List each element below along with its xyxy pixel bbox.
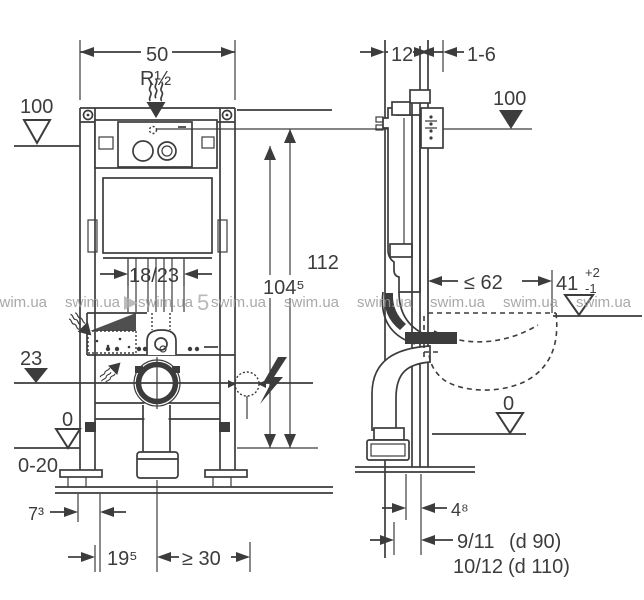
electrical-option — [228, 357, 287, 419]
dim-outlet-center: 19⁵ — [107, 548, 138, 570]
dim-foot-offset: 7³ — [28, 504, 44, 524]
dim-frame-width: 50 — [146, 44, 168, 66]
waste-elbow — [372, 346, 430, 430]
watermark-text: swim.ua — [65, 294, 121, 311]
wc-bowl-outline — [424, 313, 557, 390]
flush-plate — [95, 120, 217, 168]
dim-outlet-offset: 4⁸ — [451, 500, 469, 520]
dim-frame-depth: 12 — [391, 44, 413, 66]
supply-valve-area — [87, 313, 235, 355]
watermark-text: swim.ua — [138, 294, 194, 311]
foot-plate-right — [205, 470, 247, 477]
watermark-text: swim.ua — [430, 294, 486, 311]
level-23-mark — [24, 368, 48, 383]
dim-outlet-b: 10/12 — [453, 556, 503, 578]
watermark-text: swim.ua — [576, 294, 632, 311]
lightning-icon — [260, 357, 287, 404]
level-23-label: 23 — [20, 348, 42, 370]
dim-outlet-a-diameter: (d 90) — [509, 531, 561, 553]
watermark-text: swim.ua — [211, 294, 267, 311]
level-100-left-mark — [24, 120, 50, 143]
dim-height-total: 112 — [307, 252, 339, 274]
level-100-right-mark — [499, 110, 523, 129]
outlet-socket-side — [367, 440, 409, 460]
bowl-inlet-connector — [405, 332, 457, 344]
dim-bowl-depth: ≤ 62 — [464, 272, 503, 294]
foot-adjust-label: 0-20 — [18, 455, 58, 477]
diagram-canvas: 50 R½ 100 18/23 23 0 0-20 — [0, 0, 644, 600]
dim-wall-finish: 1-6 — [467, 44, 496, 66]
installation-dimension-drawing: 50 R½ 100 18/23 23 0 0-20 — [0, 0, 644, 600]
level-0-left-label: 0 — [62, 409, 73, 431]
watermark-text: swim.ua — [503, 294, 559, 311]
watermark-text: swim.ua — [0, 294, 48, 311]
leg-clamp-left — [85, 422, 96, 432]
cistern-access-panel — [88, 178, 227, 258]
water-inlet-arrow-upper — [65, 309, 96, 340]
outlet-socket-front — [137, 452, 178, 478]
cistern-side — [383, 108, 420, 292]
dim-outlet-b-diameter: (d 110) — [508, 556, 570, 578]
watermark-text: swim.ua — [357, 294, 413, 311]
level-0-right-label: 0 — [503, 393, 514, 415]
flush-plate-side — [421, 108, 443, 148]
dim-seat-height: 41 — [556, 273, 578, 295]
dim-plate-span: 18/23 — [129, 265, 179, 287]
level-100-right-label: 100 — [493, 88, 526, 110]
level-0-right-mark — [497, 413, 523, 433]
watermark-text: swim.ua — [284, 294, 340, 311]
watermark-digit: 5 — [197, 290, 209, 315]
dim-min-clearance: ≥ 30 — [182, 548, 221, 570]
dim-outlet-a: 9/11 — [457, 531, 494, 553]
electrical-port — [235, 372, 259, 396]
level-0-left-mark — [56, 429, 80, 448]
water-inlet-arrow-lower — [97, 358, 125, 386]
foot-plate-left — [60, 470, 102, 477]
seat-tolerance-plus: +2 — [585, 265, 600, 280]
level-100-left-label: 100 — [20, 96, 53, 118]
leg-clamp-right — [219, 422, 230, 432]
